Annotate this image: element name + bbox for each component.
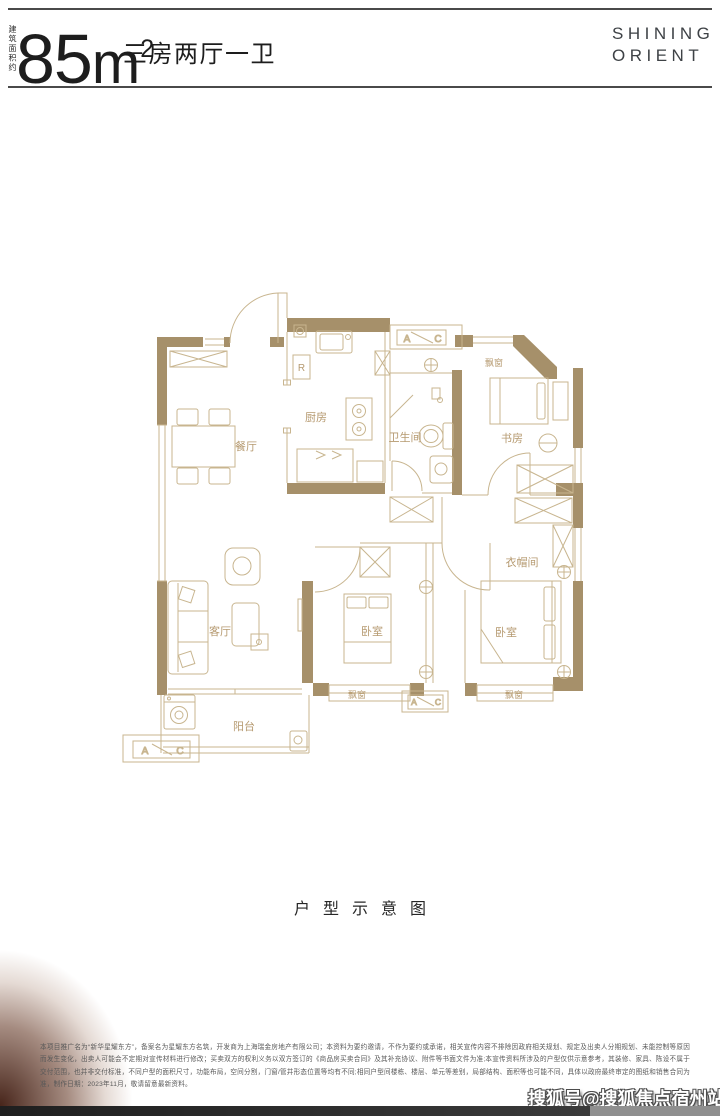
bedroom-mid-wardrobe [360, 547, 390, 577]
room-label-bedroom-right: 卧室 [495, 625, 517, 639]
ac-label-c: C [176, 746, 183, 757]
ac-label-c: C [435, 697, 441, 707]
ac-pad-top: A C [390, 325, 462, 349]
pipe-icon [420, 666, 433, 679]
toilet [419, 423, 453, 449]
ac-label-c: C [434, 334, 441, 345]
bedroom-right-furniture [481, 581, 561, 663]
room-label-balcony: 阳台 [233, 719, 255, 733]
dining-chair [209, 468, 230, 484]
balcony-sliding-door [168, 689, 302, 694]
dining-furniture [172, 409, 235, 484]
sofa [168, 581, 208, 674]
kitchen-cabinet [357, 461, 383, 482]
tv [298, 599, 302, 631]
room-labels: 餐厅 厨房 卫生间 书房 客厅 卧室 卧室 衣帽间 阳台 飘窗 飘窗 飘窗 R [209, 357, 539, 733]
bed-right [481, 581, 561, 663]
bay-window-label-right: 飘窗 [505, 689, 523, 700]
dining-chair [209, 409, 230, 425]
kitchen-sink [316, 331, 352, 353]
room-label-kitchen: 厨房 [305, 411, 327, 424]
balcony-sink [290, 731, 307, 751]
bottom-strip-dark [0, 1106, 590, 1116]
left-window [157, 425, 167, 581]
room-label-closet: 衣帽间 [506, 555, 539, 569]
dining-chair [177, 409, 198, 425]
coffee-table [232, 603, 259, 646]
entry-door-arc [230, 293, 278, 343]
ac-label-a: A [404, 334, 411, 345]
fridge-label: R [298, 363, 305, 374]
kitchen-counter [297, 449, 353, 482]
study-right-window [575, 448, 581, 483]
pipe-icon [425, 359, 438, 372]
floorplan-drawing: A C A C A C [120, 285, 600, 765]
dining-chair [177, 468, 198, 484]
walls-layer [157, 318, 583, 696]
bathroom-door-arc [392, 461, 422, 491]
study-bed [490, 378, 548, 424]
brand-line1: SHINING [612, 23, 714, 45]
hall-cabinet [390, 497, 433, 522]
room-label-bathroom: 卫生间 [389, 430, 422, 444]
ac-label-a: A [411, 697, 417, 707]
living-furniture [168, 548, 302, 674]
room-label-study: 书房 [501, 432, 523, 445]
brand-line2: ORIENT [612, 45, 714, 67]
shower-head [390, 388, 443, 418]
bedroom-right-door-arc [442, 543, 490, 590]
kitchen-furniture [293, 325, 383, 482]
ac-label-a: A [142, 746, 149, 757]
brand-logo: SHINING ORIENT [612, 23, 714, 67]
disclaimer-line: 11月，敬请留意最新资料。 [110, 1081, 192, 1088]
pipe-icon [558, 666, 571, 679]
plan-caption: 户型示意图 [0, 895, 720, 919]
closet-wardrobe-a [515, 498, 572, 523]
room-label-living: 客厅 [209, 624, 231, 638]
study-stool [539, 434, 557, 452]
diagonal-wall [513, 335, 557, 379]
bathroom-sink [430, 456, 453, 483]
study-door-arc [488, 453, 530, 495]
study-wardrobe [517, 465, 573, 493]
bottom-strip-light [590, 1106, 720, 1116]
closet-wardrobe-b [553, 525, 573, 567]
washing-machine [164, 695, 195, 729]
top-rule [8, 8, 712, 10]
layout-title: 三房两厅一卫 [123, 34, 276, 69]
duct-shaft [375, 351, 390, 375]
study-bay-window [473, 337, 513, 343]
bay-window-label-top: 飘窗 [485, 357, 503, 368]
dining-table [172, 426, 235, 467]
floorplan-page: 建筑面积约 85m2 三房两厅一卫 SHINING ORIENT [0, 0, 720, 1116]
stove [346, 398, 372, 440]
room-label-dining: 餐厅 [235, 439, 257, 453]
entry-cabinet [170, 351, 227, 367]
pipe-icon [420, 581, 433, 594]
bay-window-label-mid: 飘窗 [348, 689, 366, 700]
study-shelf [553, 382, 568, 420]
armchair [225, 548, 260, 585]
room-label-bedroom-mid: 卧室 [361, 624, 383, 638]
dining-top-window [205, 339, 224, 345]
pipe-icon [558, 566, 571, 579]
area-value: 85 [16, 20, 92, 98]
closet-right-window [575, 528, 581, 581]
bedroom-mid-door-arc [315, 547, 360, 592]
